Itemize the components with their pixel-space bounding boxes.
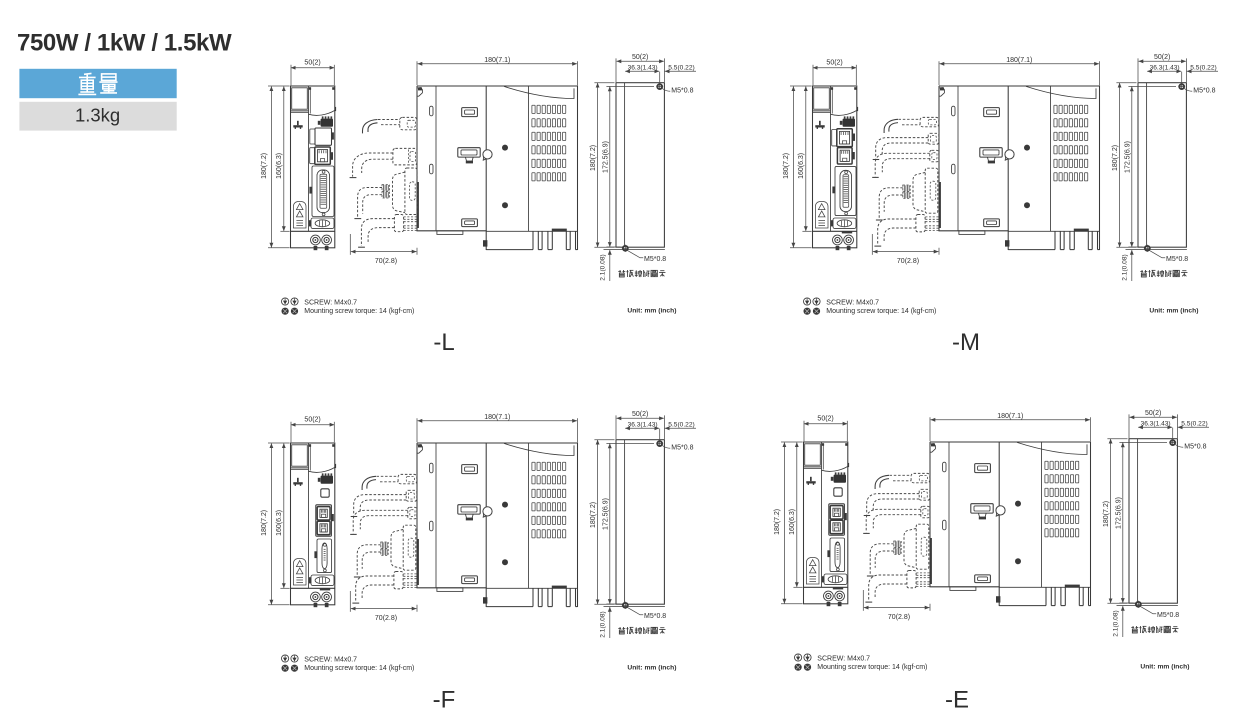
svg-text:-M: -M <box>952 329 980 356</box>
svg-text:-E: -E <box>945 687 969 714</box>
svg-text:-F: -F <box>433 687 456 714</box>
svg-text:750W / 1kW / 1.5kW: 750W / 1kW / 1.5kW <box>17 30 232 57</box>
svg-text:1.3kg: 1.3kg <box>75 105 120 126</box>
svg-text:-L: -L <box>433 329 454 356</box>
